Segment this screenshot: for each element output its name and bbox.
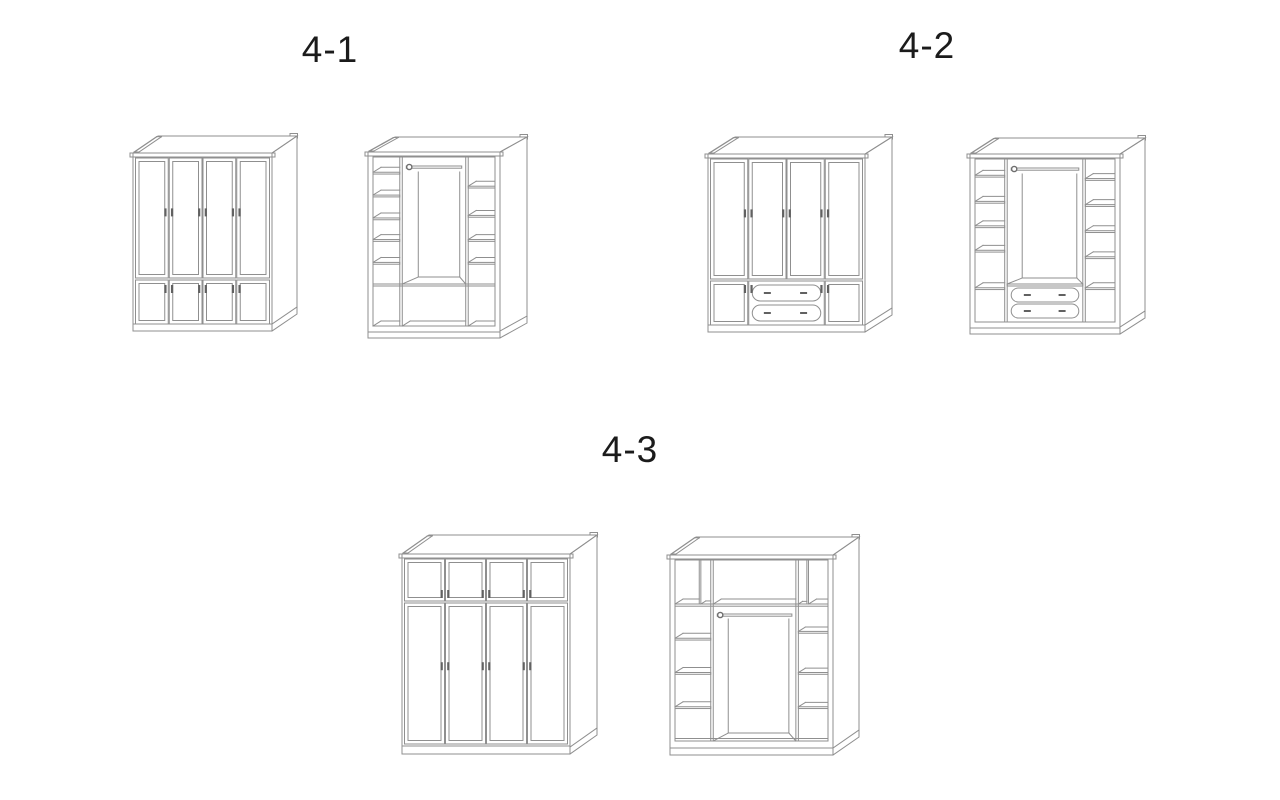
group-label-4-2: 4-2 — [847, 26, 1007, 66]
wardrobe-4-2-closed-drawing — [698, 134, 898, 340]
wardrobe-4-3-closed-drawing — [393, 523, 603, 761]
group-label-4-3: 4-3 — [550, 430, 710, 470]
wardrobe-4-1-open-drawing — [362, 133, 532, 345]
wardrobe-4-3-open-drawing — [658, 523, 863, 763]
wardrobe-diagram-sheet: 4-1 4-2 4-3 — [0, 0, 1280, 800]
group-label-4-1: 4-1 — [250, 30, 410, 70]
wardrobe-4-2-open-drawing — [962, 132, 1154, 340]
wardrobe-4-1-closed-drawing — [125, 133, 300, 345]
